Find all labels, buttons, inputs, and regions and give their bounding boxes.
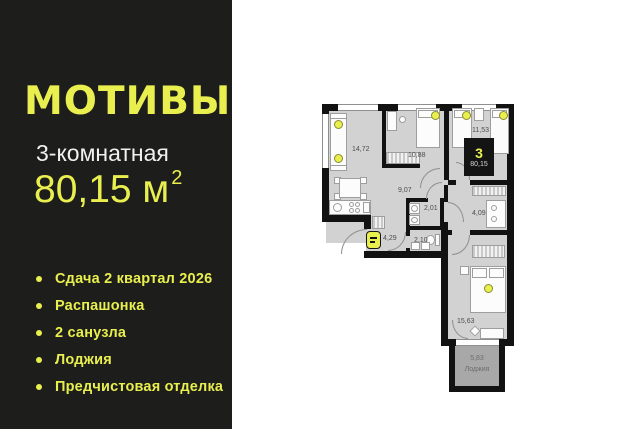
- room-label-kitchen-living: 14,72: [352, 146, 370, 153]
- room-label-entry: 4,29: [383, 235, 397, 242]
- apartment-type: 3-комнатная: [36, 141, 169, 166]
- plan-badge: 3 80,15: [464, 138, 494, 176]
- feature-list: Сдача 2 квартал 2026 Распашонка 2 санузл…: [36, 271, 223, 395]
- wall: [322, 215, 370, 222]
- toilet-tank-icon: [435, 234, 440, 246]
- room-label-bathroom-2: 2,10: [414, 237, 428, 244]
- brand-logo: МОТИВЫ: [24, 82, 231, 121]
- kitchen-sink-icon: [333, 203, 342, 212]
- bullet-icon: [36, 303, 42, 309]
- feature-label: Распашонка: [55, 298, 144, 314]
- socket-dot-icon: [334, 120, 343, 129]
- fridge-icon: [372, 216, 385, 229]
- wardrobe-icon: [472, 186, 506, 196]
- room-label-corridor: 9,07: [398, 187, 412, 194]
- washing-machine-drum: [411, 205, 418, 212]
- socket-dot-icon: [499, 111, 508, 120]
- feature-label: Предчистовая отделка: [55, 379, 223, 395]
- window: [322, 114, 329, 168]
- stove-burner-icon: [355, 202, 360, 207]
- room-label-bedroom-1: 10,88: [408, 152, 426, 159]
- feature-item: Распашонка: [36, 298, 223, 314]
- stove-burner-icon: [349, 202, 354, 207]
- room-label-bedroom-2: 11,53: [472, 127, 489, 134]
- room-label-bathroom-1: 2,01: [424, 205, 438, 212]
- bullet-icon: [36, 384, 42, 390]
- wall: [441, 251, 448, 346]
- stove-burner-icon: [355, 208, 360, 213]
- loggia-name: Лоджия: [451, 365, 503, 376]
- wall: [444, 104, 449, 180]
- room-label-bedroom-3: 15,63: [457, 318, 475, 325]
- wall: [444, 222, 448, 230]
- wall: [448, 180, 456, 185]
- desk-icon: [480, 328, 504, 339]
- area-value: 80,15 м: [34, 168, 169, 211]
- bullet-icon: [36, 276, 42, 282]
- area-superscript: 2: [171, 167, 182, 189]
- dining-chair-icon: [360, 177, 367, 184]
- info-panel: МОТИВЫ 3-комнатная 80,15 м2 Сдача 2 квар…: [0, 0, 232, 429]
- desk-icon: [387, 111, 397, 131]
- pillow-icon: [472, 268, 487, 278]
- nightstand-icon: [474, 108, 484, 121]
- socket-dot-icon: [431, 111, 440, 120]
- hall-cabinet-icon: [486, 200, 506, 228]
- wall: [444, 185, 448, 202]
- socket-dot-icon: [334, 154, 343, 163]
- bullet-icon: [36, 330, 42, 336]
- feature-item: Сдача 2 квартал 2026: [36, 271, 223, 287]
- badge-total-area: 80,15: [470, 161, 488, 168]
- apartment-area: 80,15 м2: [34, 169, 180, 212]
- wall: [441, 226, 448, 258]
- wall: [449, 386, 505, 392]
- window: [338, 104, 378, 111]
- stove-burner-icon: [349, 208, 354, 213]
- wall: [470, 230, 514, 235]
- balcony-window: [456, 339, 500, 346]
- entrance-key-icon: [366, 231, 381, 249]
- loggia-area: 5,83: [451, 354, 503, 365]
- chair-icon: [399, 116, 406, 123]
- wall: [364, 215, 371, 229]
- feature-item: Предчистовая отделка: [36, 379, 223, 395]
- bullet-icon: [36, 357, 42, 363]
- feature-label: 2 санузла: [55, 325, 126, 341]
- feature-label: Сдача 2 квартал 2026: [55, 271, 212, 287]
- socket-dot-icon: [462, 111, 471, 120]
- hall-cabinet-knob: [491, 205, 497, 211]
- wall: [322, 168, 329, 222]
- wall: [470, 180, 514, 185]
- wall: [406, 226, 410, 236]
- sofa-armrest: [330, 113, 347, 119]
- socket-dot-icon: [484, 284, 493, 293]
- feature-item: Лоджия: [36, 352, 223, 368]
- wardrobe-icon: [472, 245, 505, 258]
- wall: [322, 104, 329, 114]
- floor-plan: 14,72 10,88 11,53 9,07 2,01 4,09 4,29 2,…: [322, 98, 518, 398]
- pillow-icon: [489, 268, 504, 278]
- sink-bowl: [411, 217, 418, 223]
- hall-cabinet-knob: [491, 216, 497, 222]
- room-label-loggia: 5,83 Лоджия: [451, 354, 503, 375]
- room-label-hallway: 4,09: [472, 210, 486, 217]
- badge-rooms-count: 3: [475, 146, 483, 160]
- wall: [406, 248, 410, 258]
- sofa-armrest: [330, 165, 347, 171]
- feature-item: 2 санузла: [36, 325, 223, 341]
- dining-chair-icon: [360, 193, 367, 200]
- feature-label: Лоджия: [55, 352, 112, 368]
- nightstand-icon: [460, 266, 469, 275]
- wall: [382, 164, 420, 168]
- wall: [378, 104, 398, 111]
- dining-table-icon: [339, 178, 361, 198]
- counter-cabinet: [363, 202, 370, 213]
- wall: [406, 226, 444, 230]
